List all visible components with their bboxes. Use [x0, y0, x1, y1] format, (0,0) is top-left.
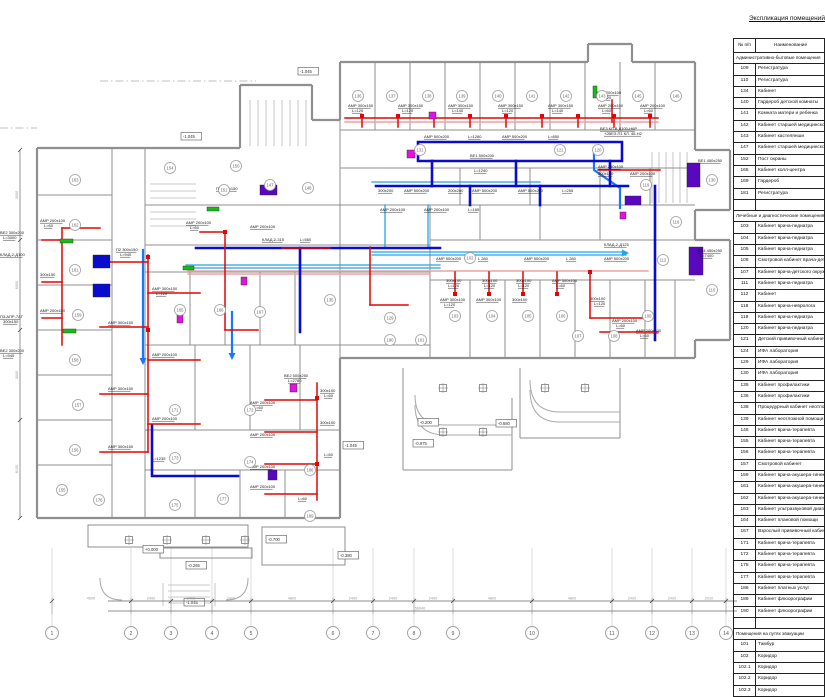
room-number-cell: 165: [734, 165, 756, 176]
duct-label: КЛАД-2-315: [262, 237, 285, 242]
room-name-cell: Детский прививочный кабинет: [756, 335, 825, 346]
room-number-cell: 159: [734, 470, 756, 481]
room-number-cell: 118: [734, 301, 756, 312]
flow-arrow: [229, 353, 236, 360]
axis-number: 13: [689, 631, 695, 637]
room-number-cell: 143: [734, 132, 756, 143]
table-row: 152Пост охраны: [734, 154, 825, 165]
column-header: Наименование: [756, 39, 825, 53]
room-explication-table: № п/пНаименованиеАдминистративно-бытовые…: [733, 38, 825, 697]
room-number-cell: 141: [734, 109, 756, 120]
room-name-cell: [756, 199, 825, 210]
table-row: 119Кабинет врача-педиатра: [734, 312, 825, 323]
purple-equipment: [687, 163, 700, 187]
table-row: 134Кабинет: [734, 86, 825, 97]
room-name-cell: Кабинет кастелянши: [756, 132, 825, 143]
room-name-cell: Кабинет старшей медицинской сестры: [756, 143, 825, 154]
room-name-cell: Смотровой кабинет: [756, 459, 825, 470]
dodger-duct: [594, 148, 620, 208]
duct-label: L=60: [556, 283, 566, 288]
hvac-floor-plan: АМР 300х150L=120АМР 300х150L=120АМР 300х…: [0, 0, 825, 661]
dim-value-left: 3000: [15, 371, 19, 379]
room-number: 157: [75, 403, 83, 408]
room-name-cell: Кабинет врача-педиатра: [756, 278, 825, 289]
level-value: -0.680: [498, 421, 511, 426]
room-name-cell: Кабинет врача-педиатра: [756, 222, 825, 233]
duct-label: L=2780: [288, 378, 302, 383]
table-row: 101Тамбур: [734, 640, 825, 651]
room-number: 154: [167, 166, 175, 171]
room-number: 159: [75, 313, 83, 318]
room-name-cell: Кабинет врача-невролога: [756, 301, 825, 312]
duct-label: АМР 200х100: [250, 484, 276, 489]
room-number-cell: 169: [734, 177, 756, 188]
duct-label: L=140: [552, 108, 564, 113]
room-name-cell: Кабинет платных услуг: [756, 583, 825, 594]
room-number: 162: [72, 223, 80, 228]
room-number: 142: [563, 94, 571, 99]
duct-node: [396, 114, 400, 118]
room-number-cell: 177: [734, 572, 756, 583]
room-name-cell: Кабинет врача-терапевта: [756, 561, 825, 572]
room-number-cell: 142: [734, 120, 756, 131]
duct-label: L=60: [324, 452, 334, 457]
room-number: 175: [172, 503, 180, 508]
room-name-cell: Кабинет: [756, 86, 825, 97]
room-name-cell: Коридор: [756, 685, 825, 696]
room-number: 101: [418, 338, 426, 343]
room-number: 140: [495, 94, 503, 99]
room-number-cell: 181: [734, 188, 756, 199]
duct-label: L=120: [156, 291, 168, 296]
ramp-curve: [100, 578, 122, 600]
room-name-cell: Смотровой кабинет врача-детского окружн.: [756, 256, 825, 267]
room-number-cell: 129: [734, 358, 756, 369]
duct-label: АМР 300х100: [476, 297, 502, 302]
dim-value: 2400: [429, 597, 437, 601]
room-name-cell: Гардероб: [756, 177, 825, 188]
room-name-cell: Кабинет врача-педиатра: [756, 233, 825, 244]
room-number: 176: [96, 498, 104, 503]
room-number-cell: 104: [734, 233, 756, 244]
duct-label: L=120: [502, 108, 514, 113]
room-number: 173: [172, 456, 180, 461]
duct-node: [315, 396, 319, 400]
duct-label: АМР 200х100: [152, 352, 178, 357]
duct-label: АМР 500х200: [404, 188, 430, 193]
room-number-cell: 139: [734, 414, 756, 425]
axis-number: 2: [130, 631, 133, 637]
blue-duct: [418, 142, 622, 161]
duct-node: [588, 270, 592, 274]
room-number: 174: [247, 460, 255, 465]
room-name-cell: Кабинет флюорографии: [756, 606, 825, 617]
duct-node: [453, 292, 457, 296]
room-name-cell: Кабинет профилактики: [756, 391, 825, 402]
room-number: 108: [611, 334, 619, 339]
room-number: 105: [525, 314, 533, 319]
table-row: 135Кабинет профилактики: [734, 380, 825, 391]
duct-label: L=60: [644, 108, 654, 113]
duct-label: АМР 200х100: [630, 171, 656, 176]
duct-node: [612, 114, 616, 118]
duct-label: L=60: [190, 225, 200, 230]
table-row: Административно-бытовые помещения: [734, 53, 825, 64]
room-number-cell: [734, 617, 756, 628]
axis-number: 9: [452, 631, 455, 637]
table-row: 142Кабинет старшей медицинской сестры: [734, 120, 825, 131]
dim-value: 4500: [87, 597, 95, 601]
duct-label: L=850: [548, 134, 560, 139]
duct-label: L=940: [120, 252, 132, 257]
room-name-cell: ИФА лаборатория: [756, 358, 825, 369]
table-row: 121Детский прививочный кабинет: [734, 335, 825, 346]
table-row: 102.1Коридор: [734, 663, 825, 674]
room-number-cell: 147: [734, 143, 756, 154]
duct-label: L=60: [602, 108, 612, 113]
table-row: 143Кабинет кастелянши: [734, 132, 825, 143]
duct-label: L=1235: [152, 456, 166, 461]
dim-value: 2010: [705, 597, 713, 601]
duct-label: 300х100: [320, 420, 336, 425]
axis-number: 5: [250, 631, 253, 637]
section-header: Административно-бытовые помещения: [734, 53, 825, 64]
room-name-cell: Кабинет: [756, 290, 825, 301]
room-number-cell: 130: [734, 369, 756, 380]
room-name-cell: ИФА лаборатория: [756, 369, 825, 380]
duct-label: АМР 300х150: [108, 444, 134, 449]
room-name-cell: Кабинет профилактики: [756, 380, 825, 391]
table-row: 147Кабинет старшей медицинской сестры: [734, 143, 825, 154]
duct-node: [540, 114, 544, 118]
room-number: 118: [673, 220, 680, 225]
explication-title: Экспликация помещений: [733, 15, 825, 22]
room-number-cell: 110: [734, 75, 756, 86]
room-name-cell: Кабинет врача-терапевта: [756, 538, 825, 549]
green-equipment: [60, 239, 73, 243]
level-value: -0.975: [415, 441, 428, 446]
room-name-cell: Кабинет врача-педиатра: [756, 312, 825, 323]
duct-label: L=1240: [474, 168, 488, 173]
dim-value: 2400: [668, 597, 676, 601]
room-number-cell: 140: [734, 98, 756, 109]
room-name-cell: Кабинет врача-терапевта: [756, 572, 825, 583]
room-number: 121: [557, 148, 565, 153]
level-value: -0.700: [268, 537, 281, 542]
duct-label: АМР 200х100: [152, 416, 178, 421]
dim-value: 2400: [389, 597, 397, 601]
room-number: 147: [267, 183, 275, 188]
duct-label: L=120: [402, 108, 414, 113]
dim-total: 56040: [415, 607, 426, 611]
axis-number: 7: [372, 631, 375, 637]
room-number: 119: [643, 183, 650, 188]
axis-number: 4: [211, 631, 214, 637]
table-row: 171Кабинет врача-терапевта: [734, 538, 825, 549]
dim-value: 2400: [628, 597, 636, 601]
room-number-cell: 152: [734, 154, 756, 165]
room-number: 151: [221, 188, 229, 193]
duct-label: L=560: [300, 237, 312, 242]
dim-value: 2400: [227, 597, 235, 601]
duct-node: [146, 255, 150, 259]
room-number: 130: [709, 178, 717, 183]
table-row: 167Взрослый прививочный кабинет: [734, 527, 825, 538]
room-name-cell: [756, 617, 825, 628]
room-number-cell: 121: [734, 335, 756, 346]
room-name-cell: Комната матери и ребенка: [756, 109, 825, 120]
duct-label: КЛАД-2-Д125: [604, 242, 630, 247]
room-number-cell: 109: [734, 64, 756, 75]
room-number: 171: [172, 408, 180, 413]
duct-label: АМР 200х100: [424, 207, 450, 212]
table-row: 103Кабинет врача-педиатра: [734, 222, 825, 233]
room-number: 139: [459, 94, 467, 99]
room-number: 112: [660, 258, 667, 263]
duct-label: АМР 200х100: [380, 207, 406, 212]
room-name-cell: Кабинет врача-терапевта: [756, 437, 825, 448]
ramp-curve: [530, 390, 620, 422]
room-name-cell: ИФА лаборатория: [756, 346, 825, 357]
table-row: 129ИФА лаборатория: [734, 358, 825, 369]
room-number-cell: 119: [734, 312, 756, 323]
room-number: 110: [709, 288, 716, 293]
room-name-cell: Процедурный кабинет неотложной: [756, 403, 825, 414]
green-equipment: [207, 207, 219, 211]
room-number: 137: [389, 94, 397, 99]
table-row: 111Кабинет врача-педиатра: [734, 278, 825, 289]
room-number-cell: 124: [734, 346, 756, 357]
duct-label: АМР 500х200: [518, 188, 544, 193]
duct-node: [555, 292, 559, 296]
duct-label: L=60: [44, 223, 54, 228]
blue-equipment: [93, 255, 110, 268]
magenta-equipment: [177, 315, 183, 323]
duct-label: L=120: [444, 302, 456, 307]
duct-label: АМР 500х200: [604, 256, 630, 261]
duct-label: 300х150: [3, 319, 19, 324]
axis-number: 14: [723, 631, 729, 637]
duct-label: 300х100: [512, 297, 528, 302]
table-row: 102.3Коридор: [734, 685, 825, 696]
room-number-cell: 164: [734, 516, 756, 527]
room-number-cell: 112: [734, 290, 756, 301]
table-row: 120Кабинет врача-педиатра: [734, 324, 825, 335]
duct-label: L=140: [452, 108, 464, 113]
table-row: 146Кабинет врача-терапевта: [734, 425, 825, 436]
duct-label: АМР 500х200: [524, 256, 550, 261]
duct-label: L=120: [448, 283, 460, 288]
room-number-cell: 102.2: [734, 674, 756, 685]
table-row: 189Кабинет флюорографии: [734, 595, 825, 606]
dim-value: 4800: [568, 597, 576, 601]
room-number-cell: 135: [734, 380, 756, 391]
room-number: 155: [59, 488, 67, 493]
table-row: 104Кабинет врача-педиатра: [734, 233, 825, 244]
drawing-sheet: { "title": "Экспликация помещений", "tab…: [0, 0, 825, 661]
room-number: 186: [307, 468, 315, 473]
room-number-cell: 171: [734, 538, 756, 549]
table-row: 141Комната матери и ребенка: [734, 109, 825, 120]
blue-equipment: [93, 284, 110, 297]
room-number-cell: 105: [734, 245, 756, 256]
section-header: Помещения на путях эвакуации: [734, 629, 825, 640]
table-row: 102.2Коридор: [734, 674, 825, 685]
table-row: 136Кабинет профилактики: [734, 391, 825, 402]
room-number-cell: 134: [734, 86, 756, 97]
room-number: 190: [387, 338, 395, 343]
room-name-cell: Регистратура: [756, 188, 825, 199]
dim-value: 2400: [349, 597, 357, 601]
table-row: 172Кабинет врача-терапевта: [734, 550, 825, 561]
duct-label: L=1280: [468, 134, 482, 139]
room-number: 167: [257, 310, 265, 315]
room-number-cell: 120: [734, 324, 756, 335]
room-number-cell: 155: [734, 437, 756, 448]
room-number-cell: 167: [734, 527, 756, 538]
room-number: 135: [327, 298, 335, 303]
duct-label: ВЕ1 500х200: [470, 153, 495, 158]
level-value: -0.265: [188, 563, 201, 568]
room-number-cell: 186: [734, 583, 756, 594]
table-row: 164Кабинет плановой помощи: [734, 516, 825, 527]
room-name-cell: Кабинет врача-детского окружн.: [756, 267, 825, 278]
room-number-cell: 138: [734, 403, 756, 414]
room-name-cell: Кабинет врача-педиатра: [756, 245, 825, 256]
duct-label: АМР 200х100: [250, 432, 276, 437]
duct-label: L=120: [352, 108, 364, 113]
duct-label: АМР 200х100: [598, 164, 624, 169]
room-number-cell: 162: [734, 493, 756, 504]
duct-label: 300х200: [378, 188, 394, 193]
duct-label: L=120: [594, 301, 606, 306]
room-number: 145: [635, 94, 643, 99]
duct-node: [487, 292, 491, 296]
room-number: 163: [72, 178, 80, 183]
room-name-cell: Гардероб детской комнаты: [756, 98, 825, 109]
table-row: 161Кабинет врача-акушера-гинеколога: [734, 482, 825, 493]
room-number-cell: 107: [734, 267, 756, 278]
duct-label: +2ВЕЗ-П1 КЛ. 45-Н2: [604, 131, 643, 136]
duct-label: АМР 200х100: [40, 308, 66, 313]
room-number-cell: 111: [734, 278, 756, 289]
room-number-cell: 102.1: [734, 663, 756, 674]
duct-label: 300х100: [598, 171, 614, 176]
table-row: 112Кабинет: [734, 290, 825, 301]
room-number: 138: [425, 94, 433, 99]
axis-number: 8: [413, 631, 416, 637]
room-name-cell: Кабинет врача-терапевта: [756, 550, 825, 561]
room-number: 166: [217, 308, 225, 313]
blue-duct: [152, 425, 238, 476]
room-number-cell: 102.3: [734, 685, 756, 696]
room-number: 158: [72, 358, 80, 363]
duct-label: L=120: [518, 283, 530, 288]
room-number-cell: 101: [734, 640, 756, 651]
axis-number: 12: [649, 631, 655, 637]
duct-label: L=7400: [700, 253, 714, 258]
magenta-equipment: [290, 384, 297, 392]
table-row: 106Смотровой кабинет врача-детского окру…: [734, 256, 825, 267]
table-row: 157Смотровой кабинет: [734, 459, 825, 470]
duct-label: АМР 500х200: [502, 134, 528, 139]
duct-label: АМР 500х200: [472, 188, 498, 193]
room-name-cell: Кабинет колл-центра: [756, 165, 825, 176]
room-name-cell: Кабинет неотложной помощи: [756, 414, 825, 425]
duct-node: [576, 114, 580, 118]
table-row: 109Регистратура: [734, 64, 825, 75]
room-number: 109: [645, 314, 653, 319]
duct-node: [521, 292, 525, 296]
room-number-cell: 163: [734, 504, 756, 515]
room-number: 102: [467, 256, 475, 261]
level-value: -0.200: [420, 420, 433, 425]
duct-label: L=60: [324, 393, 334, 398]
room-number-cell: 190: [734, 606, 756, 617]
table-row: 181Регистратура: [734, 188, 825, 199]
floor-plan-canvas: АМР 300х150L=120АМР 300х150L=120АМР 300х…: [0, 0, 825, 661]
dim-value: 4800: [488, 597, 496, 601]
room-name-cell: Кабинет плановой помощи: [756, 516, 825, 527]
purple-equipment: [625, 196, 641, 205]
magenta-equipment: [241, 277, 247, 285]
table-header-row: № п/пНаименование: [734, 39, 825, 53]
table-row: Помещения на путях эвакуации: [734, 629, 825, 640]
section-header: Лечебные и диагностические помещения: [734, 211, 825, 222]
room-number: 161: [72, 268, 80, 273]
duct-label: АМР 200х100: [250, 224, 276, 229]
table-row: 169Гардероб: [734, 177, 825, 188]
duct-label: АМР 500х200: [424, 134, 450, 139]
room-number: 146: [673, 94, 681, 99]
duct-label: КЛАД-2-Д100: [0, 252, 26, 257]
room-number: 150: [233, 164, 241, 169]
room-number: 107: [575, 334, 583, 339]
room-number: 136: [355, 94, 363, 99]
room-name-cell: Регистратура: [756, 64, 825, 75]
room-number: 156: [72, 448, 80, 453]
duct-label: L 280: [478, 256, 489, 261]
room-name-cell: Кабинет врача-терапевта: [756, 425, 825, 436]
table-row: 190Кабинет флюорографии: [734, 606, 825, 617]
table-row: 177Кабинет врача-терапевта: [734, 572, 825, 583]
level-value: -0.380: [340, 553, 353, 558]
room-number-cell: [734, 199, 756, 210]
level-value: +0.000: [145, 547, 159, 552]
table-row: 130ИФА лаборатория: [734, 369, 825, 380]
duct-label: L 280: [566, 256, 577, 261]
room-number-cell: 157: [734, 459, 756, 470]
room-number: 103: [452, 314, 460, 319]
level-value: -1.045: [345, 443, 358, 448]
table-row: [734, 617, 825, 628]
green-equipment: [183, 266, 194, 270]
room-number-cell: 161: [734, 482, 756, 493]
room-number-cell: 103: [734, 222, 756, 233]
duct-label: L=3000: [3, 235, 17, 240]
duct-label: АМР 500х200: [436, 256, 462, 261]
axis-number: 3: [170, 631, 173, 637]
room-number-cell: 189: [734, 595, 756, 606]
room-number-cell: 136: [734, 391, 756, 402]
magenta-equipment: [429, 112, 436, 119]
table-row: 175Кабинет врача-терапевта: [734, 561, 825, 572]
duct-label: АМР 300х150: [108, 386, 134, 391]
table-row: [734, 199, 825, 210]
duct-label: L=165: [468, 207, 480, 212]
duct-label: L=60: [616, 323, 626, 328]
duct-node: [315, 462, 319, 466]
